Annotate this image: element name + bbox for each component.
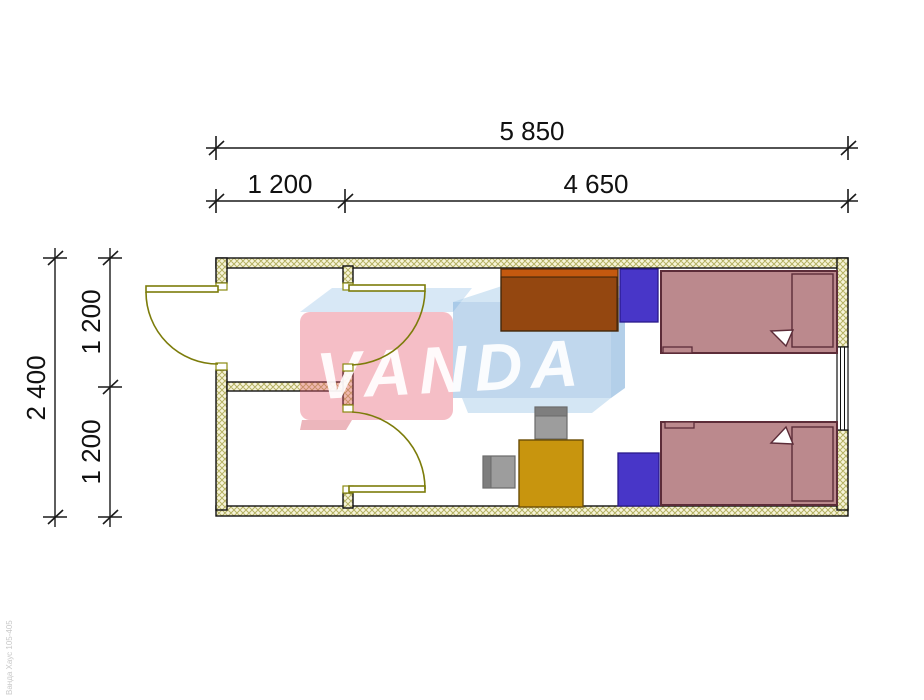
partition-stub-top bbox=[343, 266, 353, 283]
chair-top-backrest bbox=[535, 407, 567, 416]
bed-bottom-pillow bbox=[792, 427, 833, 501]
door-frame bbox=[343, 364, 353, 371]
bed-bottom-head-detail bbox=[665, 422, 694, 428]
wall-right-upper bbox=[837, 258, 848, 347]
door-leaf-room-bottom bbox=[349, 486, 425, 492]
wall-right-lower bbox=[837, 430, 848, 510]
logo-left-bottom-face bbox=[300, 420, 352, 430]
nightstand-bottom bbox=[618, 453, 659, 506]
fine-print: Ванда Хаус 105-405 bbox=[5, 620, 14, 695]
door-swing-entrance bbox=[146, 292, 218, 364]
dim-top-segment-2: 4 650 bbox=[563, 169, 628, 199]
wall-left-lower bbox=[216, 370, 227, 510]
dim-left-segment-1: 1 200 bbox=[76, 289, 106, 354]
window-opening bbox=[837, 347, 848, 430]
dim-top-total: 5 850 bbox=[499, 116, 564, 146]
dim-top-segment-1: 1 200 bbox=[247, 169, 312, 199]
bed-top-foot-detail bbox=[663, 347, 692, 353]
table bbox=[519, 440, 583, 507]
door-swing-room-bottom bbox=[352, 412, 425, 489]
window bbox=[837, 347, 848, 430]
desk-overlay bbox=[501, 277, 617, 331]
floor-plan-drawing: 5 850 1 200 4 650 2 400 1 200 1 200 bbox=[0, 0, 924, 700]
door-leaf-entrance bbox=[146, 286, 218, 292]
chair-top bbox=[535, 407, 567, 439]
chair-left-backrest bbox=[483, 456, 491, 488]
door-frame bbox=[343, 405, 353, 412]
dim-left-segment-2: 1 200 bbox=[76, 419, 106, 484]
wall-top bbox=[216, 258, 848, 268]
brand-text: VANDA bbox=[315, 325, 588, 413]
wardrobe-desk bbox=[501, 269, 618, 331]
floor-plan-canvas: 5 850 1 200 4 650 2 400 1 200 1 200 bbox=[0, 0, 924, 700]
partition-stub-bottom bbox=[343, 493, 353, 508]
door-leaf-room-top bbox=[349, 285, 425, 291]
dim-left-total: 2 400 bbox=[21, 355, 51, 420]
bed-top-pillow bbox=[792, 274, 833, 347]
nightstand-top bbox=[620, 269, 658, 322]
bed-bottom bbox=[661, 422, 837, 505]
wall-left-upper bbox=[216, 258, 227, 283]
bed-top bbox=[661, 271, 837, 353]
chair-left bbox=[483, 456, 515, 488]
